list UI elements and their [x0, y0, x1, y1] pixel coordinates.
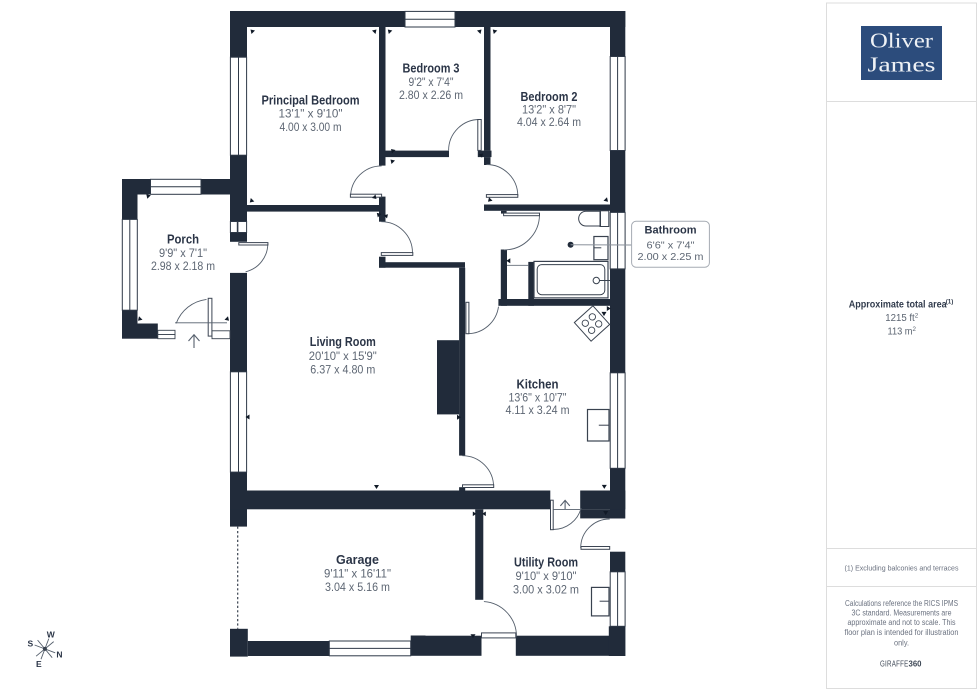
svg-text:113 m: 113 m — [888, 326, 913, 337]
svg-text:3.00 x 3.02 m: 3.00 x 3.02 m — [513, 585, 579, 597]
svg-text:4.04 x 2.64 m: 4.04 x 2.64 m — [517, 117, 581, 129]
svg-text:9'2" x 7'4": 9'2" x 7'4" — [409, 77, 454, 89]
svg-text:E: E — [36, 659, 42, 669]
svg-text:9'11" x 16'11": 9'11" x 16'11" — [324, 569, 391, 581]
svg-text:360: 360 — [909, 660, 923, 669]
svg-text:2.98 x 2.18 m: 2.98 x 2.18 m — [151, 261, 215, 273]
svg-text:Kitchen: Kitchen — [517, 377, 559, 392]
svg-text:Utility Room: Utility Room — [514, 555, 578, 570]
svg-text:Principal Bedroom: Principal Bedroom — [262, 93, 360, 108]
svg-text:6.37 x 4.80 m: 6.37 x 4.80 m — [310, 365, 375, 377]
svg-text:Porch: Porch — [167, 232, 199, 247]
svg-text:4.00 x 3.00 m: 4.00 x 3.00 m — [280, 122, 342, 134]
svg-text:13'1" x 9'10": 13'1" x 9'10" — [279, 109, 343, 121]
svg-text:9'10" x 9'10": 9'10" x 9'10" — [516, 571, 577, 583]
svg-text:Approximate total area: Approximate total area — [849, 299, 948, 310]
svg-text:2.80 x 2.26 m: 2.80 x 2.26 m — [399, 90, 463, 102]
svg-text:3C standard. Measurements are: 3C standard. Measurements are — [852, 609, 953, 618]
svg-text:Oliver: Oliver — [870, 29, 933, 53]
svg-text:2.00 x 2.25 m: 2.00 x 2.25 m — [638, 252, 704, 263]
svg-text:(1) Excluding balconies and te: (1) Excluding balconies and terraces — [845, 564, 959, 573]
svg-text:James: James — [868, 53, 936, 77]
svg-text:1215 ft: 1215 ft — [885, 313, 915, 324]
svg-text:Bedroom 2: Bedroom 2 — [521, 89, 578, 104]
svg-text:20'10" x 15'9": 20'10" x 15'9" — [309, 351, 377, 363]
svg-text:2: 2 — [915, 312, 919, 319]
svg-text:S: S — [27, 639, 33, 649]
svg-text:3.04 x 5.16 m: 3.04 x 5.16 m — [325, 582, 390, 594]
svg-text:Bedroom 3: Bedroom 3 — [403, 61, 460, 76]
svg-text:floor plan is intended for ill: floor plan is intended for illustration — [845, 628, 959, 637]
svg-text:W: W — [47, 630, 56, 640]
svg-text:N: N — [56, 650, 62, 660]
svg-text:6'6" x 7'4": 6'6" x 7'4" — [647, 240, 695, 251]
svg-text:only.: only. — [894, 638, 909, 647]
svg-text:Calculations reference the RIC: Calculations reference the RICS IPMS — [845, 599, 958, 608]
svg-text:Bathroom: Bathroom — [645, 225, 697, 237]
svg-text:approximate and not to scale.: approximate and not to scale. This — [848, 618, 956, 627]
svg-text:13'6" x 10'7": 13'6" x 10'7" — [509, 393, 567, 405]
svg-text:Living Room: Living Room — [310, 334, 376, 349]
svg-text:GIRAFFE: GIRAFFE — [880, 660, 909, 669]
svg-text:9'9" x 7'1": 9'9" x 7'1" — [159, 248, 207, 260]
svg-text:2: 2 — [912, 326, 916, 333]
svg-text:Garage: Garage — [336, 552, 379, 567]
svg-text:4.11 x 3.24 m: 4.11 x 3.24 m — [506, 405, 570, 417]
svg-text:13'2" x 8'7": 13'2" x 8'7" — [522, 105, 576, 117]
svg-text:(1): (1) — [946, 299, 954, 306]
